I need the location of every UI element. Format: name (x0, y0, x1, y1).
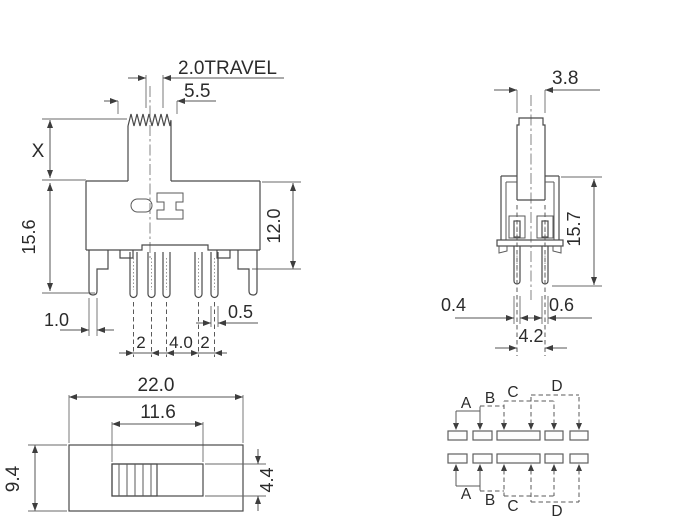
pin-width-label: 0.5 (228, 302, 253, 322)
body-height-label: 12.0 (264, 208, 284, 243)
pad (497, 454, 540, 463)
dim-knob-thickness: 3.8 (494, 68, 600, 113)
dim-total-height-front: 15.6 (19, 183, 95, 293)
total-height-label: 15.6 (19, 219, 39, 254)
slot-width-label: 4.4 (257, 467, 277, 492)
connection-diagram: A B C D A B C D (448, 378, 588, 520)
pitch-left-label: 2 (136, 333, 145, 352)
dim-stem-height: X (32, 119, 127, 180)
position-label-c-bottom: C (507, 498, 518, 515)
dim-body-width: 9.4 (3, 445, 67, 511)
front-pin-width-label: 0.4 (441, 295, 466, 315)
front-view: 2.0TRAVEL 5.5 X 15.6 (19, 58, 301, 357)
position-label-b-bottom: B (485, 492, 495, 509)
dim-pin-row-spacing: 4.2 (495, 326, 567, 351)
pad-row-top (448, 431, 588, 440)
pad (448, 431, 467, 440)
side-view: 3.8 (441, 68, 602, 356)
dim-knob-width: 5.5 (104, 81, 216, 114)
pad (497, 431, 540, 440)
position-label-a-top: A (461, 395, 472, 412)
pad (570, 454, 588, 463)
pad (448, 454, 467, 463)
bracket-width-label: 1.0 (44, 310, 69, 330)
pad-row-bottom (448, 454, 588, 463)
pin-spacing-label: 4.2 (518, 326, 543, 346)
pitch-center-label: 4.0 (169, 333, 193, 352)
body-length-label: 22.0 (138, 375, 175, 396)
technical-drawing-canvas: 2.0TRAVEL 5.5 X 15.6 (0, 0, 676, 522)
base-plate (497, 240, 563, 246)
slide-switch-drawing: 2.0TRAVEL 5.5 X 15.6 (0, 0, 676, 522)
position-label-a-bottom: A (461, 486, 472, 503)
top-view: 22.0 11.6 9.4 (3, 375, 277, 511)
pitch-right-label: 2 (200, 333, 209, 352)
mounting-bracket-right (238, 250, 257, 295)
pad (473, 454, 492, 463)
position-label-d-top: D (551, 378, 562, 395)
position-label-c-top: C (507, 384, 518, 401)
dim-slot-width: 4.4 (205, 449, 277, 511)
pad (545, 454, 563, 463)
actuator-front (128, 86, 171, 258)
mounting-bracket-left (89, 250, 108, 295)
stem-height-label: X (32, 141, 45, 162)
pad (473, 431, 492, 440)
position-arrows-bottom: A B C D (453, 464, 582, 520)
rear-pin-width-label: 0.6 (549, 295, 574, 315)
dim-body-height: 12.0 (252, 182, 301, 269)
knob-thickness-label: 3.8 (552, 68, 578, 89)
dim-pin-pitches: 2 4.0 2 (119, 333, 227, 356)
contact-ornament (131, 193, 183, 219)
body-width-label: 9.4 (3, 465, 24, 492)
pad (545, 431, 563, 440)
actuator-top (112, 464, 157, 496)
dim-slot-length: 11.6 (112, 402, 203, 462)
switch-body-front (86, 181, 260, 258)
knob-width-label: 5.5 (184, 81, 210, 102)
dim-pin-width: 0.5 (196, 302, 258, 327)
position-label-b-top: B (485, 390, 495, 407)
position-arrows-top: A B C D (453, 378, 582, 430)
dim-bracket-width: 1.0 (44, 298, 114, 336)
switch-body-side (497, 176, 563, 253)
side-height-label: 15.7 (564, 211, 584, 246)
slot-length-label: 11.6 (140, 402, 176, 423)
position-label-d-bottom: D (551, 503, 562, 520)
travel-label: 2.0TRAVEL (178, 58, 277, 79)
switch-body-top (69, 445, 243, 511)
pad (570, 431, 588, 440)
